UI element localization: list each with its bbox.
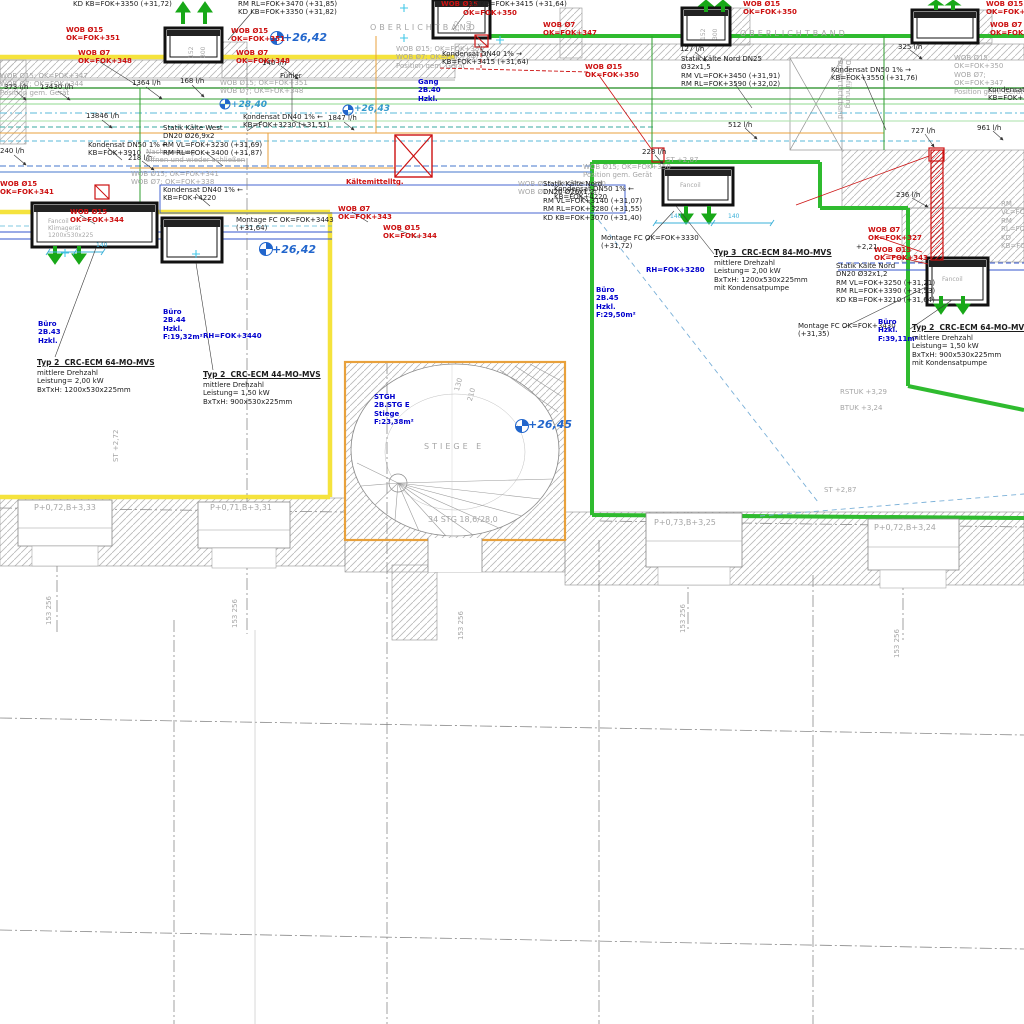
unit-dim: 300 (466, 21, 473, 32)
wob-label: WOB Ø15 OK=FOK+350 (743, 0, 797, 17)
flow-label: 13846 l/h (86, 112, 119, 120)
window-dim-pair: 153 256 (231, 599, 239, 628)
unit-dim: 152 (454, 21, 461, 32)
band-label: OBERLICHTBAND (370, 23, 478, 33)
condensate-note: Kondensat DN40 1% ← KB=FOK+4220 (163, 186, 243, 203)
pipe-note: Statik Kälte Nord DN20 Ø26x1,2 RM VL=FOK… (543, 180, 642, 222)
wob-label: WOB Ø7 OK=FOK+347 (990, 21, 1024, 38)
flow-label: 727 l/h (911, 127, 935, 135)
wob-label: WOB Ø15 OK=FOK+351 (231, 27, 285, 44)
height-note: ST +2,87 (824, 486, 856, 494)
flow-label: 1364 l/h (132, 79, 161, 87)
flow-label: 1847 l/h (328, 114, 357, 122)
window-sill-label: P+0,71,B+3,31 (210, 503, 272, 513)
condensate-note: Kondensat DN40 1% → KB=FOK+3415 (+31,64) (442, 50, 529, 67)
wob-label: WOB Ø7 OK=FOK+348 (236, 49, 290, 66)
flow-label: 325 l/h (898, 43, 922, 51)
window-dim-pair: 153 256 (45, 596, 53, 625)
height-note: +2,21 (856, 243, 877, 251)
level-marker: +26,43 (354, 104, 390, 115)
montage-note: Montage FC OK=FOK+3330 (+31,72) (601, 234, 699, 251)
unit-interior-label: Fancoil (680, 182, 701, 189)
flow-label: 240 l/h (0, 147, 24, 155)
unit-spec-heading: Typ 3 CRC-ECM 84-MO-MVS (714, 248, 832, 257)
cyan-dim-label: 140 (670, 213, 681, 220)
room-label: Büro 2B.45 Hzkl. F:29,50m² (596, 286, 636, 320)
wob-label: WOB Ø15 OK=FOK+344 (383, 224, 437, 241)
level-marker: +26,42 (272, 243, 316, 256)
pipe-note: KD KB=FOK+3415 (+31,64) (468, 0, 567, 8)
room-label: Gang 2B.40 Hzkl. (418, 78, 441, 103)
unit-dim: 300 (200, 47, 207, 58)
height-note: ST +2,87 (666, 156, 698, 164)
wob-label: WOB Ø15 OK=FOK+350 (585, 63, 639, 80)
window-sill-label: P+0,72,B+3,33 (34, 503, 96, 513)
unit-dim: 152 (700, 29, 707, 40)
stair-steps-note: 34 STG 18,6/28,0 (428, 515, 498, 525)
height-note: ST +2,72 (112, 430, 120, 462)
window-dim-pair: 153 256 (893, 629, 901, 658)
window-dim-pair: 153 256 (457, 611, 465, 640)
pipe-note: Statik Kälte West DN20 Ø26,9x2 RM VL=FOK… (163, 124, 262, 158)
unit-spec-heading: Typ 2 CRC-ECM 44-MO-MVS (203, 370, 321, 379)
condensate-note: Kondensat DN50 1% → KB=FOK+3550 (+31,76) (831, 66, 918, 83)
pipe-note: Statik Kälte Nord DN20 Ø32x1,2 RM VL=FOK… (836, 262, 935, 304)
pipe-note: RM RL=FOK+3470 (+31,85) KD KB=FOK+3350 (… (238, 0, 337, 17)
unit-spec-body: mittlere Drehzahl Leistung= 1,50 kW BxTx… (203, 381, 292, 406)
window-dim-pair: 153 256 (679, 604, 687, 633)
height-note: RSTUK +3,29 (840, 388, 887, 396)
cyan-dim-label: 140 (96, 242, 107, 249)
level-marker: +26,42 (283, 31, 327, 44)
wob-label: WOB Ø7 OK=FOK+343 (338, 205, 392, 222)
cyan-dim-label: 140 (728, 213, 739, 220)
band-label: OBERLICHTBAND (740, 29, 848, 39)
wob-label: WOB Ø15 OK=FOK+351 (66, 26, 120, 43)
unit-spec-body: mittlere Drehzahl Leistung= 2,00 kW BxTx… (37, 369, 131, 394)
unit-interior-label: Fancoil (942, 276, 963, 283)
ghost-note: WOB Ø15; OK=FOK+341 WOB Ø7; OK=FOK+338 (131, 170, 219, 187)
level-marker: +26,45 (528, 418, 572, 431)
wob-label: WOB Ø15 OK=FOK+341 (0, 180, 54, 197)
unit-spec-body: mittlere Drehzahl Leistung= 1,50 kW BxTx… (912, 334, 1001, 368)
unit-spec-body: mittlere Drehzahl Leistung= 2,00 kW BxTx… (714, 259, 808, 293)
refrigerant-label: Kältemittelltg. (346, 178, 404, 186)
stair-name: STIEGE E (424, 442, 484, 452)
ghost-note: WOB Ø15; OK=FOK+351 WOB Ø7; OK=FOK+348 (220, 79, 308, 96)
flow-label: 236 l/h (896, 191, 920, 199)
ghost-note: WOB Ø15; OK=FOK+350 Position gem. Gerät (583, 163, 671, 180)
flow-label: 512 l/h (728, 121, 752, 129)
flow-label: 127 l/h (680, 45, 704, 53)
wob-label: WOB Ø7 OK=FOK+347 (543, 21, 597, 38)
height-reference: RH=FOK+3440 (203, 332, 262, 340)
window-sill-label: P+0,72,B+3,24 (874, 523, 936, 533)
height-note: BTUK +3,24 (840, 404, 882, 412)
floor-plan-canvas: +26,42 +26,42 +26,45 +28,40 +26,43 373 l… (0, 0, 1024, 1024)
flow-label: 228 l/h (642, 148, 666, 156)
window-sill-label: P+0,73,B+3,25 (654, 518, 716, 528)
wob-label: WOB Ø7 OK=FOK+348 (78, 49, 132, 66)
room-label: Büro 2B.43 Hzkl. (38, 320, 61, 345)
pipe-note: KD KB=FOK+3350 (+31,72) (73, 0, 172, 8)
unit-interior-label: Fancoil Klimagerät 1200x530x225 (48, 218, 93, 240)
pipe-note: Statik Kälte Nord DN25 Ø32x1,5 RM VL=FOK… (681, 55, 780, 89)
room-label: Büro 2B.44 Hzkl. F:19,32m² (163, 308, 203, 342)
unit-dim: 152 (188, 47, 195, 58)
ghost-note: WOB Ø15; OK=FOK+347 WOB Ø7; OK=FOK+344 P… (0, 72, 88, 97)
wob-label: WOB Ø7 OK=FOK+327 (868, 226, 922, 243)
condensate-note: Kondensat KB=FOK+3550 (988, 86, 1024, 103)
sensor-note: Fühler (280, 72, 302, 80)
level-marker: +28,40 (231, 100, 267, 111)
unit-spec-heading: Typ 2 CRC-ECM 64-MO-MVS (912, 323, 1024, 332)
unit-spec-heading: Typ 2 CRC-ECM 64-MO-MVS (37, 358, 155, 367)
wob-label: OK=FOK+350 (463, 9, 517, 17)
room-label: STGH 2B.STG E Stiege F:23,38m² (374, 393, 414, 427)
flow-label: 961 l/h (977, 124, 1001, 132)
stair-door-opening (428, 538, 482, 572)
height-reference: RH=FOK+3280 (646, 266, 705, 274)
unit-dim: 300 (712, 29, 719, 40)
flow-label: 168 l/h (180, 77, 204, 85)
wob-label: WOB Ø15 OK=FOK+350 (986, 0, 1024, 17)
wob-label: WOB Ø15 OK=FOK+343 (874, 246, 928, 263)
ghost-note: RM VL=FOK+3250 RM RL=FOK+3390 KD KB=FOK+… (1001, 200, 1024, 250)
condensate-note: Kondensat DN50 1% ← KB=FOK+3910 (88, 141, 168, 158)
montage-note: Montage FC OK=FOK+3443 (+31,64) (236, 216, 334, 233)
